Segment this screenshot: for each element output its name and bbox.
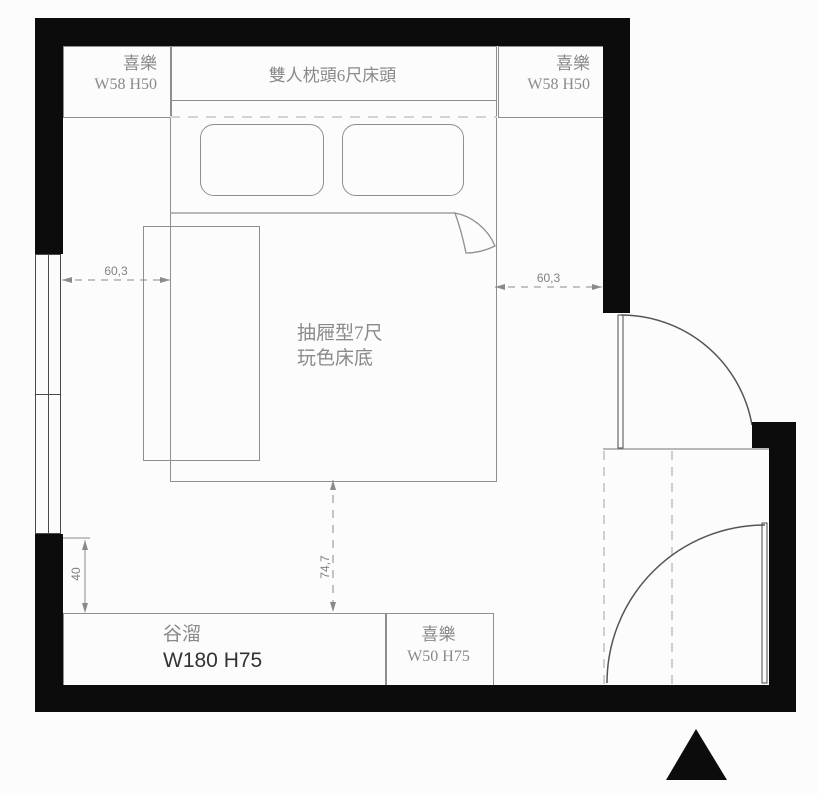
furniture-name: 喜樂 <box>63 53 157 74</box>
floor-plan: 雙人枕頭6尺床頭 喜樂 W58 H50 喜樂 W58 H50 抽屜型7尺 玩色床… <box>0 0 818 795</box>
wall-right-upper <box>603 18 630 313</box>
door-upper-leaf <box>618 315 623 448</box>
cabinet-small-label: 喜樂 W50 H75 <box>385 624 492 668</box>
bed-label: 抽屜型7尺 玩色床底 <box>297 321 383 371</box>
wall-alcove-right <box>769 448 796 712</box>
cabinet-long-label: 谷溜 W180 H75 <box>163 622 262 674</box>
linework-layer <box>0 0 818 795</box>
furniture-name: 谷溜 <box>163 622 262 648</box>
furniture-name: 喜樂 <box>498 53 590 74</box>
wall-top <box>35 18 630 46</box>
headboard-label: 雙人枕頭6尺床頭 <box>170 61 495 86</box>
dim-label-side-gap: 40 <box>69 547 83 601</box>
arrow-icon <box>330 480 336 490</box>
nightstand-left-label: 喜樂 W58 H50 <box>63 53 170 95</box>
door-lower-leaf <box>762 523 767 683</box>
arrow-icon <box>82 603 88 613</box>
nightstand-right-label: 喜樂 W58 H50 <box>498 53 603 95</box>
wall-stub-doorway <box>752 422 796 448</box>
window-left <box>35 254 61 534</box>
bed-label-line1: 抽屜型7尺 <box>297 321 383 346</box>
entry-triangle-marker <box>666 729 727 780</box>
door-lower-swing-arc <box>607 525 765 683</box>
blanket-fold-icon <box>455 213 495 253</box>
dim-label-right-gap: 60,3 <box>495 271 602 285</box>
dim-label-left-gap: 60,3 <box>62 264 170 278</box>
furniture-size: W180 H75 <box>163 648 262 674</box>
furniture-size: W58 H50 <box>63 74 157 95</box>
dim-label-bottom-gap: 74,7 <box>318 540 332 594</box>
furniture-size: W58 H50 <box>498 74 590 95</box>
wall-left-upper <box>35 18 63 254</box>
wall-bottom <box>35 685 796 712</box>
furniture-size: W50 H75 <box>385 646 492 668</box>
furniture-name: 喜樂 <box>385 624 492 646</box>
door-upper-swing-arc <box>621 315 752 425</box>
bed-label-line2: 玩色床底 <box>297 346 383 371</box>
window-divider-line <box>36 394 60 395</box>
arrow-icon <box>330 602 336 612</box>
